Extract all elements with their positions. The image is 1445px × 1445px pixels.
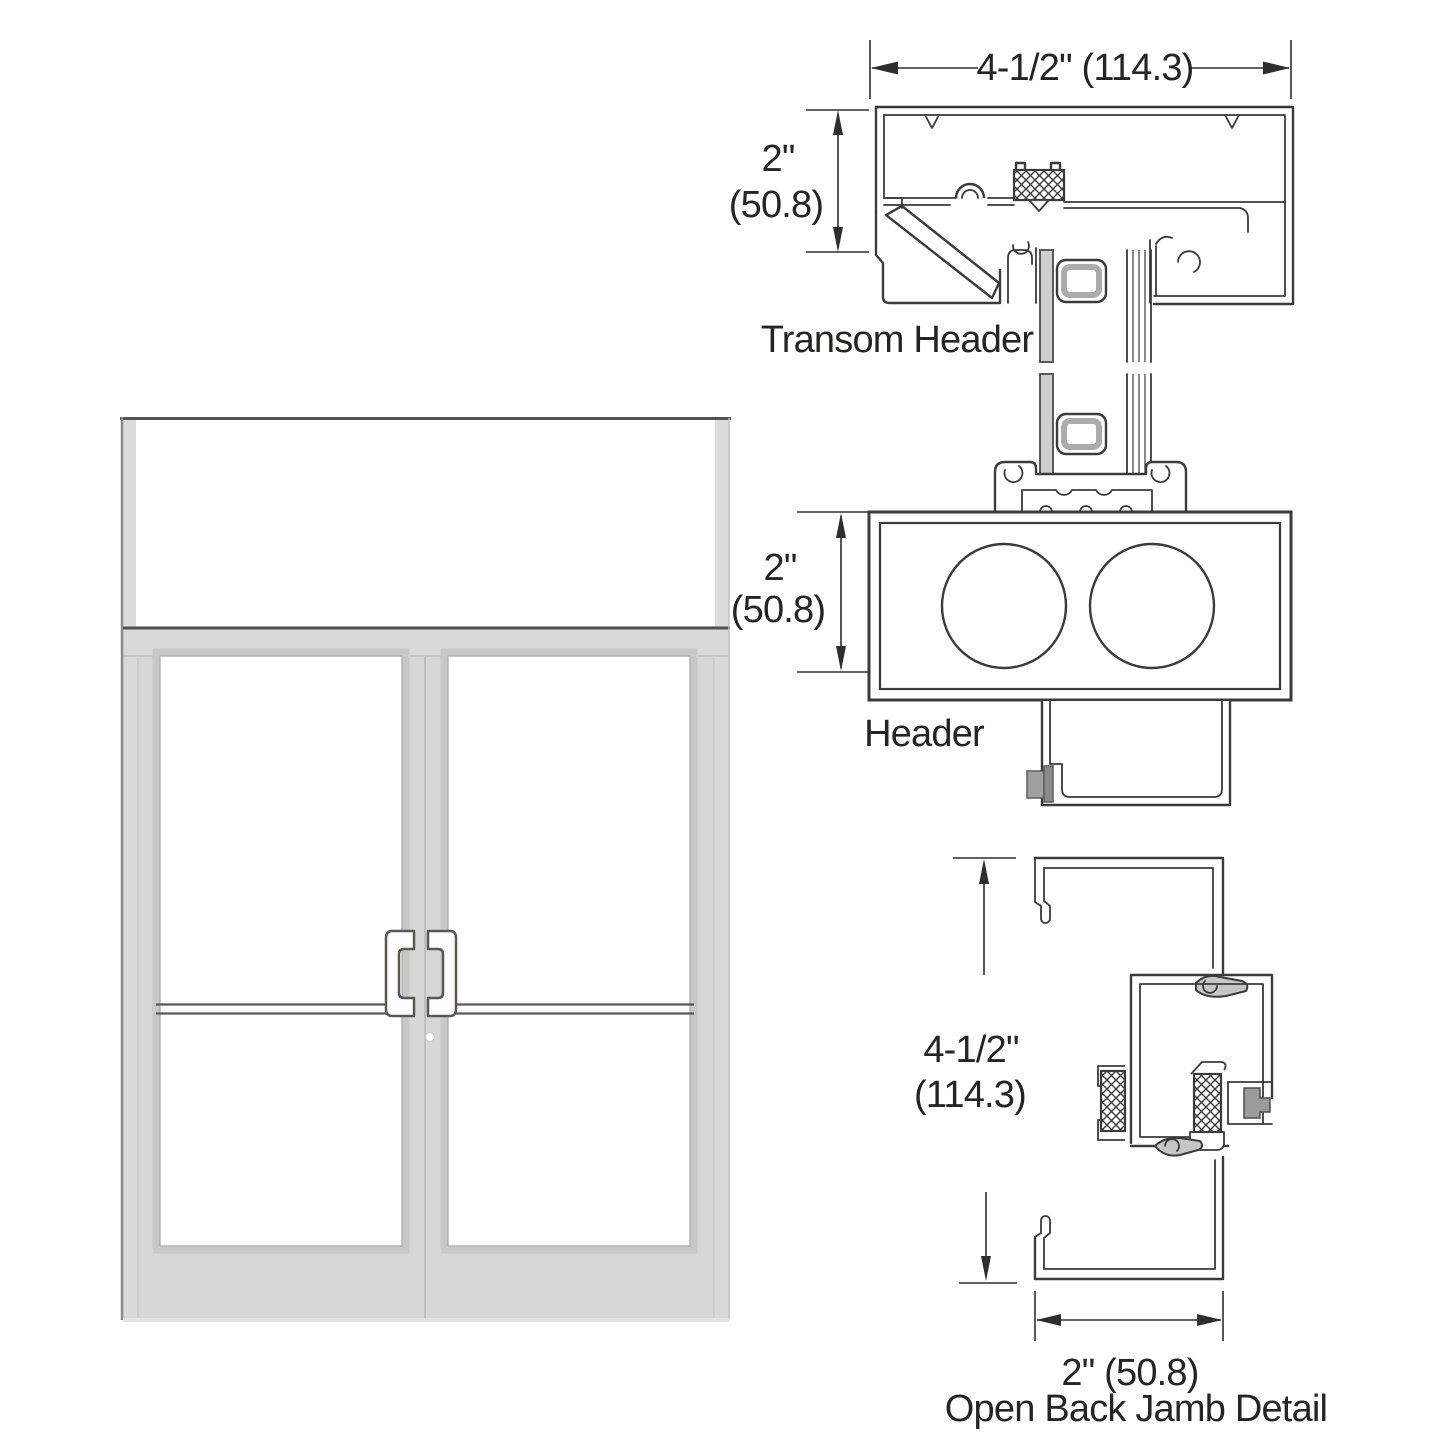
glass-lite (160, 656, 402, 1246)
sill-shadow (123, 1318, 729, 1322)
jamb-bottom-hook (1035, 1216, 1050, 1269)
technical-drawing-sheet: 4-1/2" (114.3) 2" (50.8) Transom Header … (0, 0, 1445, 1445)
transom-glass-panel (136, 421, 715, 627)
arrow-down-icon (833, 227, 843, 252)
dim-jamb-width (1035, 1291, 1223, 1341)
screw-notches (925, 115, 1239, 128)
cylinder-lock-dot (426, 1033, 435, 1042)
jamb-depth-mm-text: (114.3) (914, 1074, 1026, 1116)
door-stop-bumper (1027, 771, 1044, 798)
door-glass-left (156, 652, 406, 1250)
glass-pane (1040, 250, 1053, 362)
glass-stop-flap (886, 206, 999, 298)
header-height-mm-text: (50.8) (731, 589, 825, 631)
gasket-crosshatch (1014, 170, 1064, 200)
door-stop-channel (1027, 701, 1230, 805)
arrow-right-icon (1263, 62, 1290, 75)
door-elevation (120, 417, 731, 1322)
header-height-in-text: 2" (763, 547, 796, 589)
door-stile-section (1098, 975, 1272, 1156)
jamb-top-outer (1035, 858, 1223, 973)
open-back-jamb-label: Open Back Jamb Detail (945, 1388, 1327, 1430)
spacer-top (1057, 260, 1106, 302)
glazing-gasket (1014, 163, 1064, 211)
dimension-lines (1035, 1291, 1223, 1341)
door-jamb-left (123, 657, 138, 1318)
ig-unit-lines (1133, 250, 1145, 492)
jamb-top-inner (1044, 868, 1213, 968)
transom-jamb-right (715, 419, 729, 628)
header-tube-outer (869, 512, 1291, 700)
door-jamb-right (714, 657, 729, 1318)
gasket-dart (1029, 200, 1049, 211)
transom-height-in-text: 2" (761, 138, 794, 180)
transom-header-label: Transom Header (761, 319, 1035, 361)
arrow-up-icon (833, 110, 843, 135)
transom-glass-unit (1040, 250, 1151, 492)
arrow-down-icon (981, 1256, 991, 1281)
jamb-bottom-inner (1044, 1160, 1215, 1269)
arrow-down-icon (836, 646, 846, 671)
weatherstrip-cap-center (1191, 1062, 1226, 1074)
spacer-ring (1064, 267, 1099, 295)
glass-edge-block (1244, 1088, 1270, 1118)
spacer-ring (1064, 421, 1099, 447)
internal-webs (884, 198, 1285, 232)
transom-height-mm-text: (50.8) (729, 184, 823, 226)
arrow-up-icon (836, 513, 846, 538)
storefront-door-diagram: 4-1/2" (114.3) 2" (50.8) Transom Header … (0, 0, 1445, 1445)
glazing-bead-right (1150, 237, 1200, 303)
door-glass-right (444, 652, 694, 1250)
header-label: Header (864, 713, 985, 755)
dim-transom-face (806, 110, 869, 252)
arrow-right-icon (1197, 1314, 1222, 1326)
transom-jamb-left (123, 419, 136, 628)
bumper-flange (1044, 766, 1053, 802)
screw-boss-icon (956, 184, 984, 198)
weatherstrip-left (1101, 1071, 1125, 1131)
jamb-bottom-outer (1035, 1157, 1223, 1279)
channel-outer (1042, 701, 1230, 805)
header-cutout-circle-left (942, 544, 1066, 668)
arrow-left-icon (871, 62, 898, 75)
arrow-left-icon (1036, 1314, 1061, 1326)
arrow-up-icon (979, 859, 989, 884)
frame-width-dimension-text: 4-1/2" (114.3) (976, 47, 1193, 89)
spacer-bottom (1057, 414, 1106, 454)
glazing-bead-left (1008, 242, 1036, 303)
header-cutout-circle-right (1090, 544, 1214, 668)
glass-lite (448, 656, 690, 1246)
weatherstrip-center (1194, 1074, 1221, 1132)
jamb-depth-in-text: 4-1/2" (923, 1029, 1018, 1071)
